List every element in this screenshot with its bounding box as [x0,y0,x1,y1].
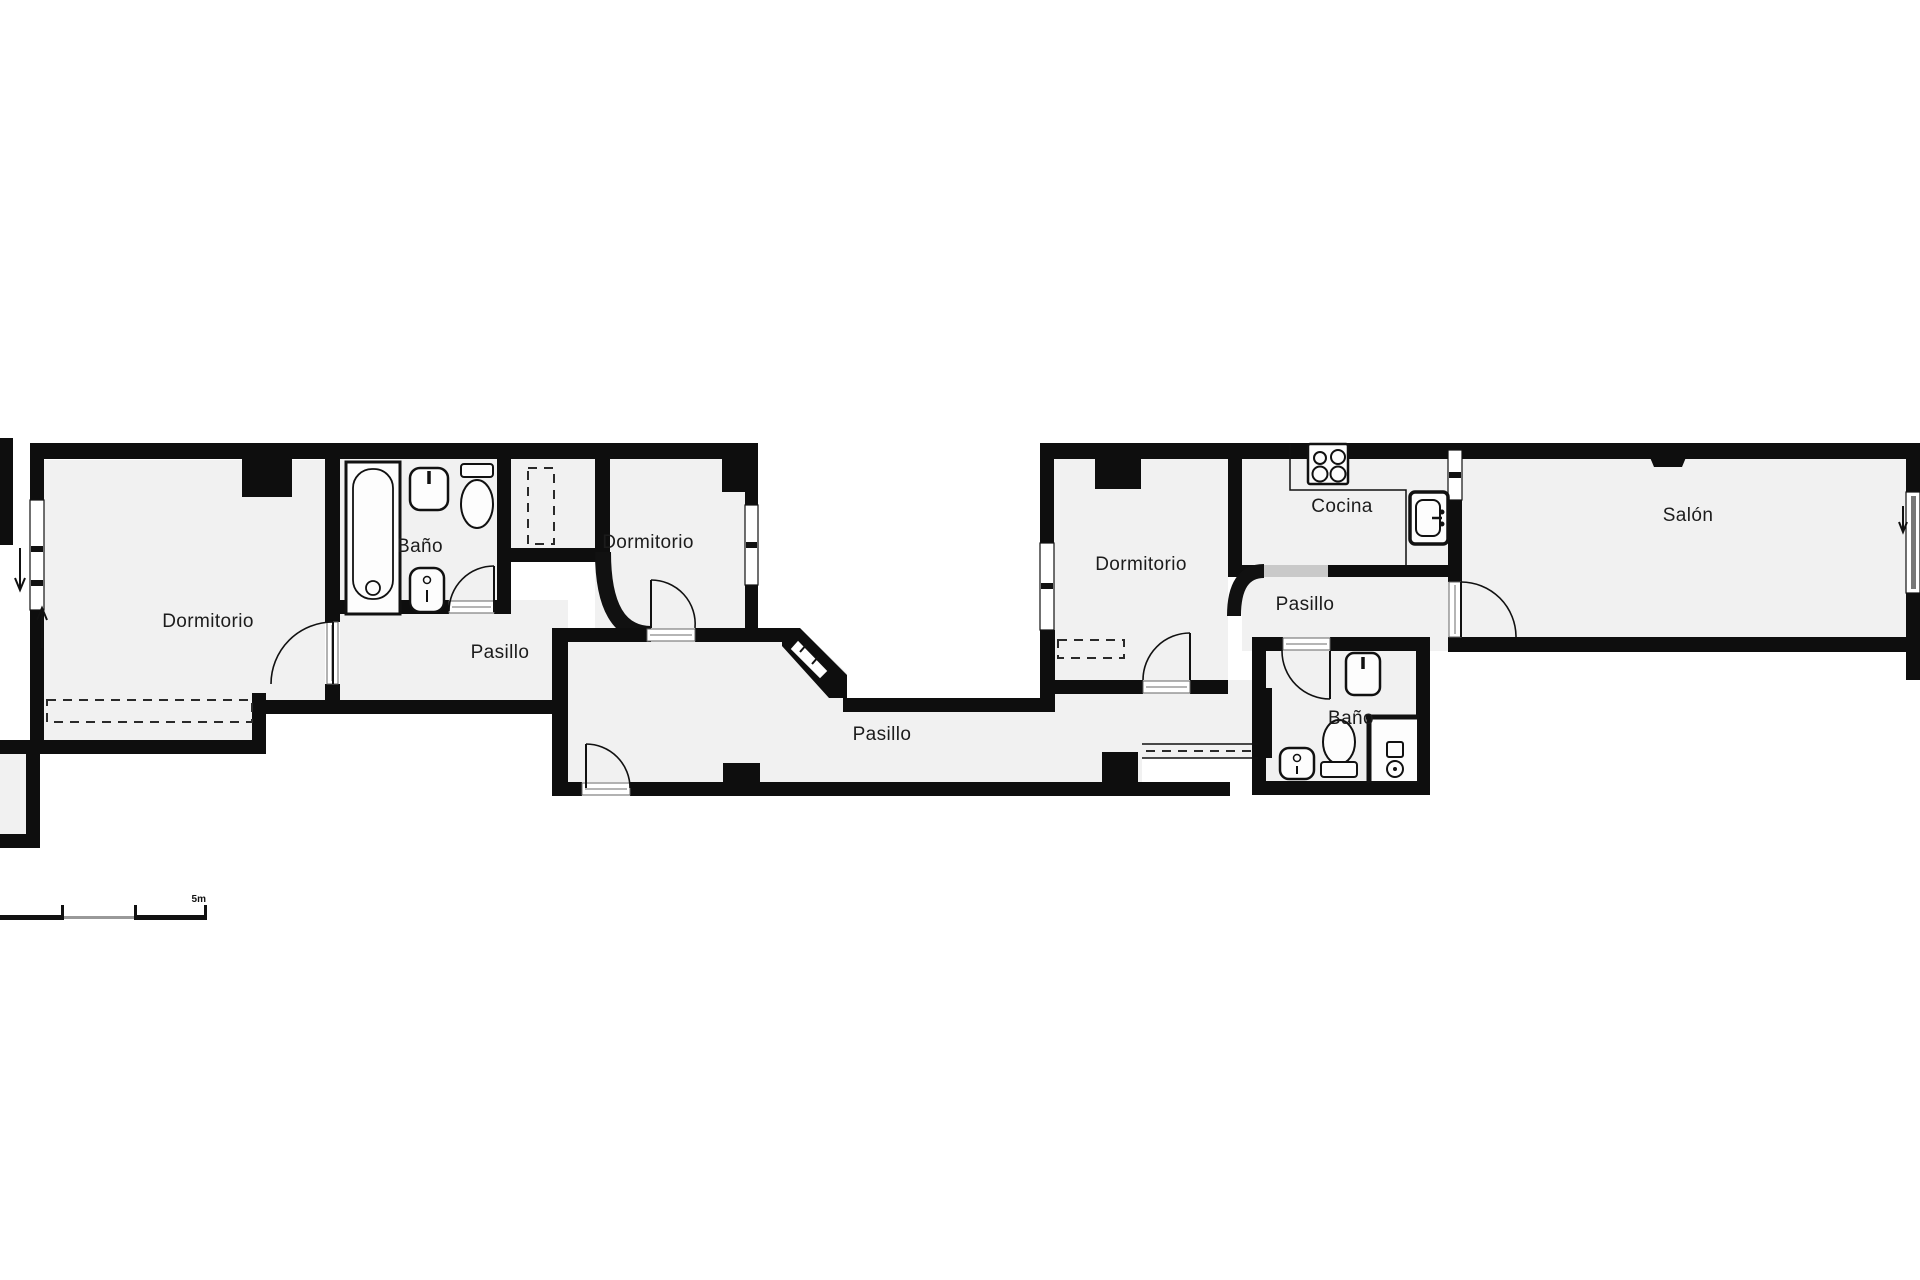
toilet-1 [461,464,493,528]
threshold-entry [582,783,630,795]
stove [1308,444,1348,484]
block-corridor-west [723,763,760,792]
chimney-block-dormitorio-3 [1095,459,1141,489]
bathtub [346,462,400,614]
window-dormitorio-1 [30,500,44,610]
wall-edge-fragment [0,438,13,545]
floor-plan-svg: Dormitorio Baño Pasillo Dormitorio Pasil… [0,0,1920,1280]
room-label-dormitorio-3: Dormitorio [1095,554,1187,575]
block-corridor-east [1102,752,1138,792]
room-label-banyo-2: Baño [1328,708,1374,729]
washbasin-1 [410,468,448,510]
window-salon-right [1906,492,1920,593]
threshold-banyo-1 [449,601,494,613]
room-label-salon: Salón [1663,505,1714,526]
floor-dormitorio-1 [44,460,325,740]
floor-salon [1462,459,1906,647]
arrow-down-left-edge [15,548,25,590]
room-label-banyo-1: Baño [397,536,443,557]
threshold-banyo-2 [1283,638,1330,650]
room-label-pasillo-central: Pasillo [853,724,912,745]
scale-bar-label: 5m [192,894,207,905]
room-label-dormitorio-2: Dormitorio [602,532,694,553]
threshold-salon [1449,582,1461,637]
floor-shaft [511,458,595,548]
floor-plan-page: Dormitorio Baño Pasillo Dormitorio Pasil… [0,0,1920,1280]
threshold-dormitorio-2 [647,629,695,641]
threshold-dormitorio-3 [1143,681,1190,693]
bidet-1 [410,568,444,612]
sliding-door-cocina [1258,565,1328,577]
room-label-cocina: Cocina [1311,496,1373,517]
washbasin-2 [1346,653,1380,695]
window-dormitorio-2 [745,505,758,585]
floor-cut-room [0,754,26,834]
kitchen-sink [1410,492,1448,544]
corner-block-dormitorio-2 [722,443,758,492]
room-label-dormitorio-1: Dormitorio [162,611,254,632]
room-label-pasillo-2: Pasillo [1276,594,1335,615]
room-label-pasillo-1: Pasillo [471,642,530,663]
chimney-block-left [242,459,292,497]
window-dormitorio-3 [1040,543,1054,630]
bidet-2 [1280,748,1314,779]
scale-bar: 5m [0,894,207,920]
window-cocina-salon [1448,450,1462,500]
